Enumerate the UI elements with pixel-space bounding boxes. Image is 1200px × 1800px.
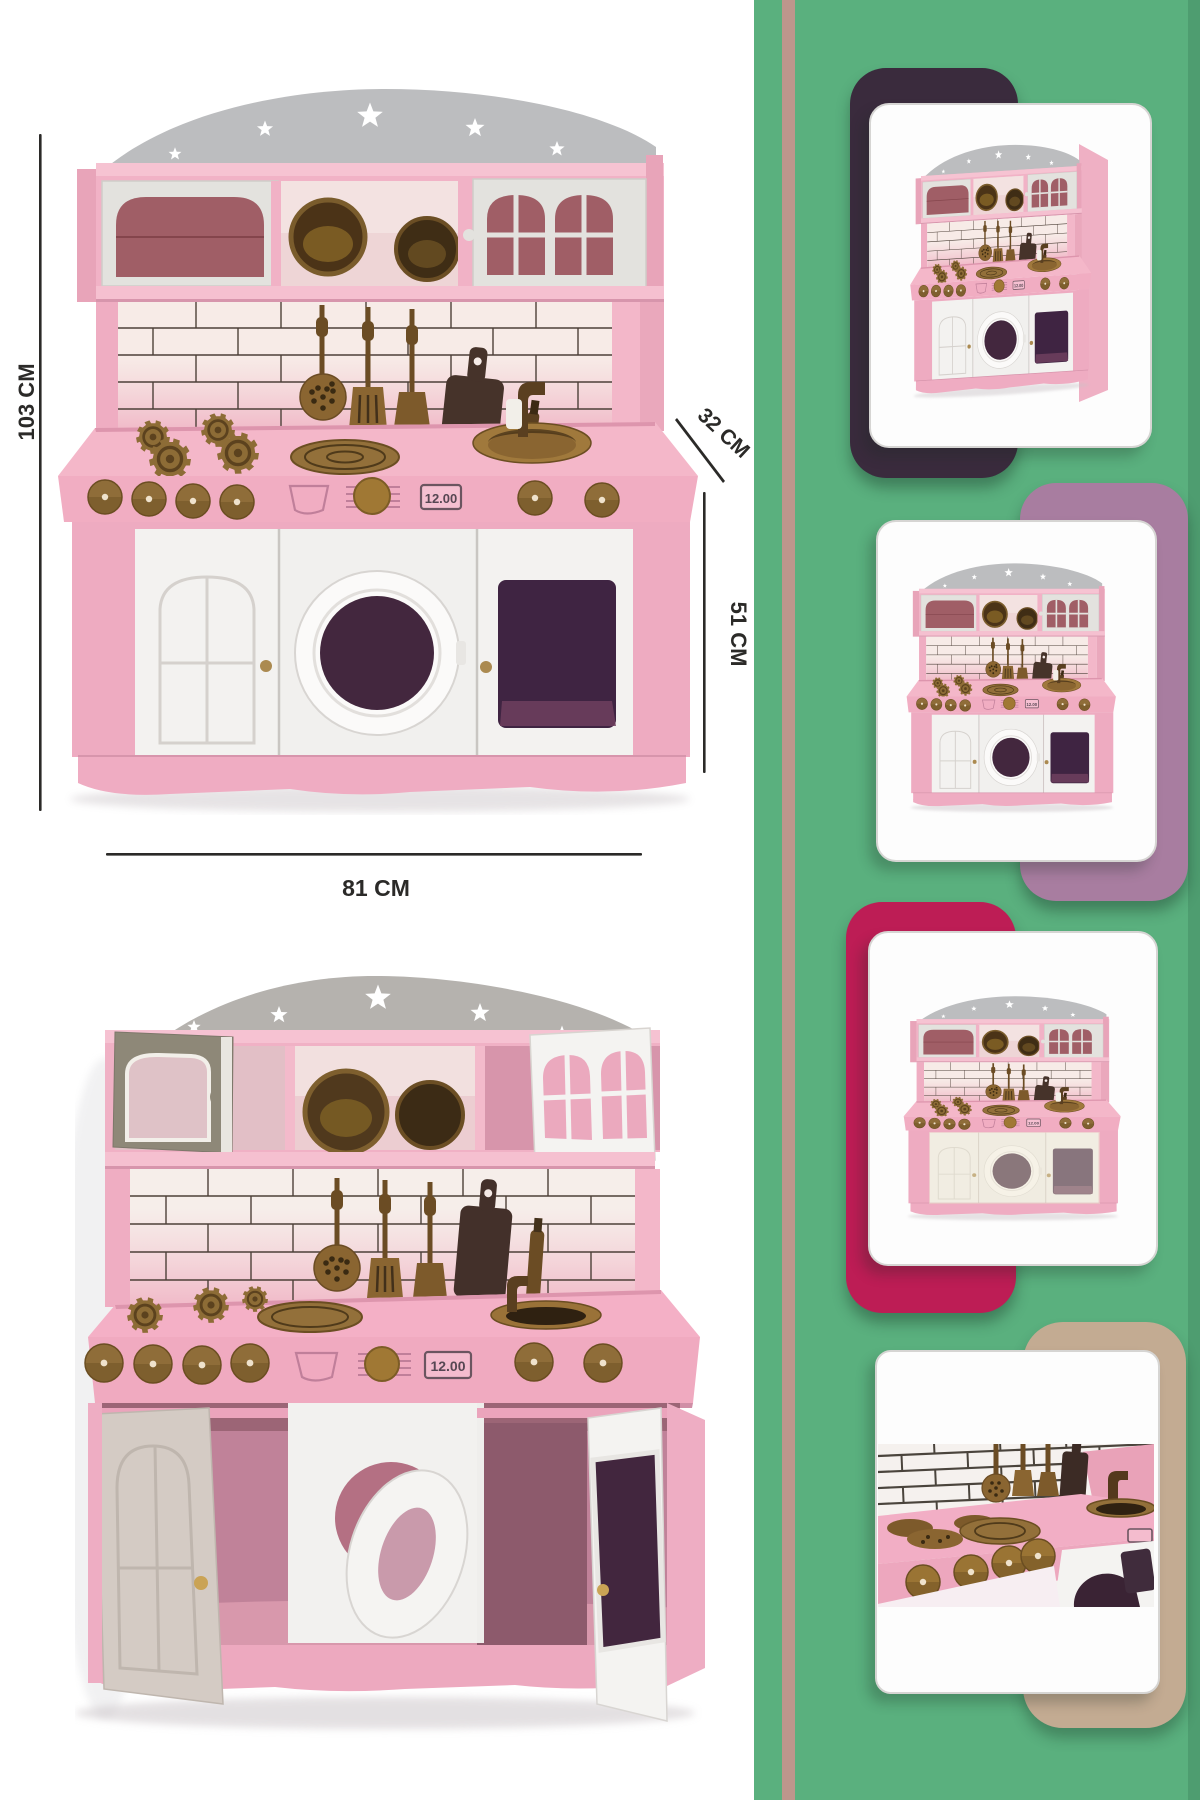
svg-text:81 CM: 81 CM — [342, 875, 410, 901]
svg-text:51 CM: 51 CM — [726, 602, 751, 667]
svg-text:12.00: 12.00 — [430, 1358, 465, 1374]
svg-text:103 CM: 103 CM — [14, 363, 39, 440]
